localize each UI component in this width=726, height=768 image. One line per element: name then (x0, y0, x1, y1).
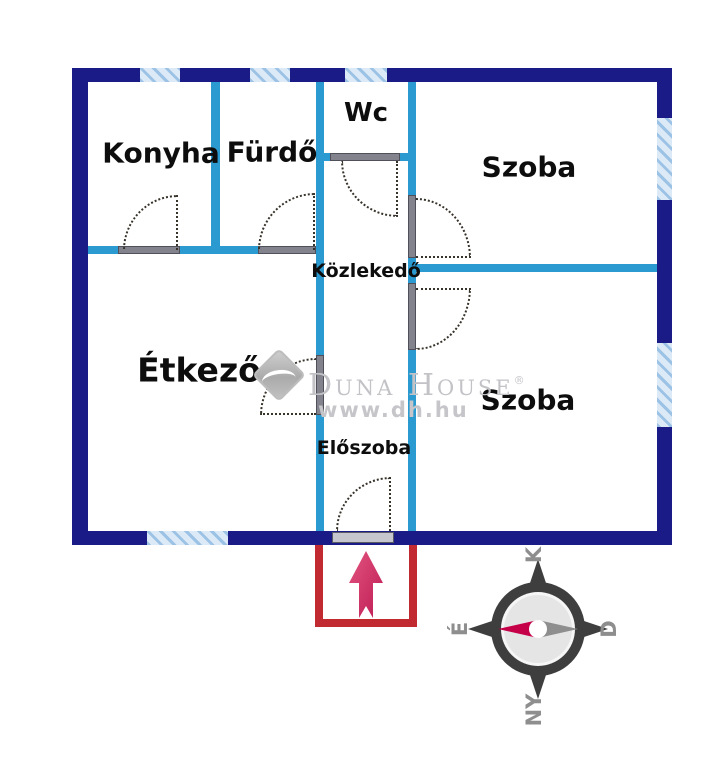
room-label-etkezo: Étkező (137, 351, 261, 390)
room-label-konyha: Konyha (102, 137, 219, 170)
door-threshold-szoba-top (408, 195, 416, 258)
compass-label-south: D (597, 620, 621, 637)
window-bottom-1 (147, 531, 228, 545)
door-arc-konyha-icon (123, 195, 178, 250)
compass-label-north: É (448, 622, 472, 636)
door-threshold-wc (330, 153, 400, 161)
entrance-arrow-icon (315, 545, 417, 627)
window-top-3 (345, 68, 387, 82)
room-label-eloszoba: Előszoba (317, 437, 411, 459)
door-threshold-szoba-bottom (408, 283, 416, 350)
watermark-url: www.dh.hu (318, 398, 469, 422)
compass-label-west: NY (522, 694, 546, 727)
outer-wall-left (72, 68, 88, 545)
window-right-1 (657, 118, 672, 200)
room-label-furdo: Fürdő (227, 136, 318, 169)
wall-between-szoba (416, 264, 657, 272)
door-arc-szoba-bottom-icon (416, 288, 471, 350)
compass-label-east: K (522, 547, 546, 563)
door-arc-wc-icon (341, 161, 398, 217)
registered-mark: ® (514, 374, 528, 387)
window-top-2 (250, 68, 290, 82)
door-arc-szoba-top-icon (416, 198, 471, 258)
door-threshold-entrance (332, 532, 394, 543)
floor-plan: Konyha Fürdő Wc Szoba Közlekedő Étkező S… (0, 0, 726, 768)
window-top-1 (140, 68, 180, 82)
brand-watermark: Duna House® (308, 366, 668, 401)
room-label-kozlekedo: Közlekedő (311, 260, 421, 282)
duna-house-logo-icon (252, 348, 306, 402)
door-arc-furdo-icon (258, 193, 315, 250)
room-label-szoba-top: Szoba (482, 151, 577, 184)
room-label-wc: Wc (344, 98, 388, 128)
door-arc-eloszoba-icon (336, 477, 391, 531)
compass-rose-icon (466, 557, 610, 701)
